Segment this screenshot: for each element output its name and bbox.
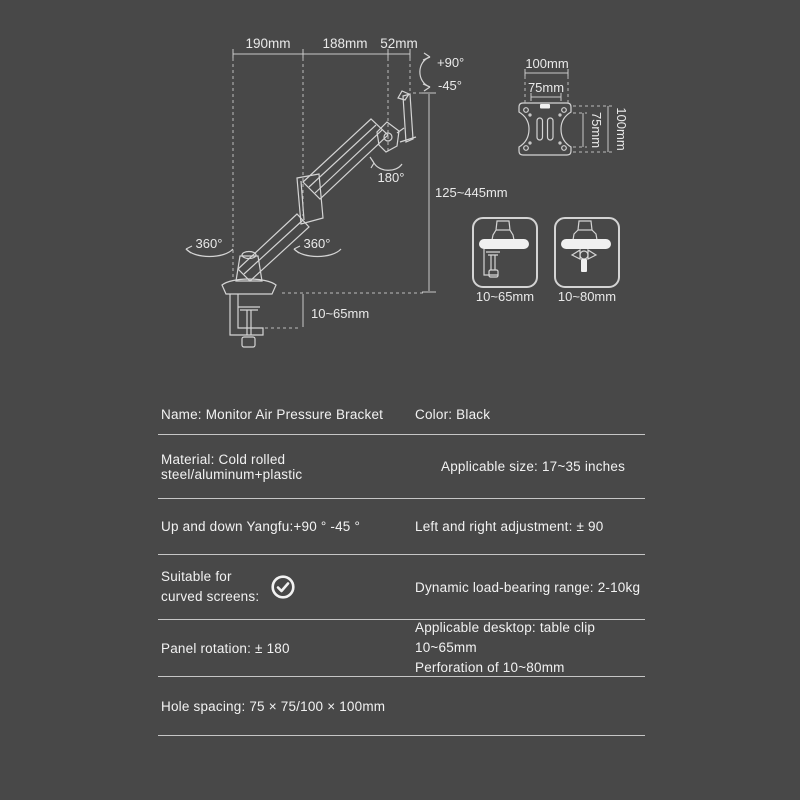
spec-material: Material: Cold rolled steel/aluminum+pla… bbox=[158, 452, 415, 482]
height-range-dimension: 125~445mm bbox=[413, 93, 508, 292]
spec-applicable-size: Applicable size: 17~35 inches bbox=[415, 459, 645, 474]
dim-label-190mm: 190mm bbox=[245, 36, 290, 51]
spec-hole-spacing: Hole spacing: 75 × 75/100 × 100mm bbox=[158, 699, 645, 714]
panel-rotation-annotation: 180° bbox=[370, 157, 404, 185]
product-spec-page: 190mm 188mm 52mm +90° -45° bbox=[0, 0, 800, 800]
clamp-thickness-dimension: 10~65mm bbox=[265, 293, 426, 328]
mount-option-clamp: 10~65mm bbox=[473, 218, 537, 304]
dim-label-188mm: 188mm bbox=[322, 36, 367, 51]
mount-option-grommet: 10~80mm bbox=[555, 218, 619, 304]
spec-row-rotation-desktop: Panel rotation: ± 180 Applicable desktop… bbox=[158, 620, 645, 677]
vesa-height-inner-label: 75mm bbox=[589, 112, 604, 148]
spec-left-right: Left and right adjustment: ± 90 bbox=[415, 519, 645, 534]
spec-up-down: Up and down Yangfu:+90 ° -45 ° bbox=[158, 519, 415, 534]
spec-row-name-color: Name: Monitor Air Pressure Bracket Color… bbox=[158, 395, 645, 435]
panel-rotation-label: 180° bbox=[378, 170, 405, 185]
mount-option-grommet-label: 10~80mm bbox=[558, 289, 616, 304]
spec-applicable-desktop: Applicable desktop: table clip 10~65mm P… bbox=[415, 618, 645, 679]
spec-row-tilt-swivel: Up and down Yangfu:+90 ° -45 ° Left and … bbox=[158, 499, 645, 555]
vesa-width-inner-label: 75mm bbox=[528, 80, 564, 95]
swivel-right-label: 360° bbox=[304, 236, 331, 251]
swivel-left-annotation: 360° bbox=[186, 236, 233, 257]
product-diagram: 190mm 188mm 52mm +90° -45° bbox=[0, 0, 800, 392]
spec-table: Name: Monitor Air Pressure Bracket Color… bbox=[158, 395, 645, 736]
swivel-left-label: 360° bbox=[196, 236, 223, 251]
vesa-dimensions: 100mm 75mm 75mm 100mm bbox=[525, 56, 629, 152]
height-range-label: 125~445mm bbox=[435, 185, 508, 200]
spec-curved-screens: Suitable for curved screens: bbox=[161, 567, 259, 608]
tilt-up-label: +90° bbox=[437, 55, 464, 70]
check-circle-icon bbox=[270, 574, 296, 600]
swivel-right-annotation: 360° bbox=[294, 236, 341, 257]
clamp-range-label: 10~65mm bbox=[311, 306, 369, 321]
vesa-plate-drawing bbox=[519, 103, 571, 155]
spec-load-range: Dynamic load-bearing range: 2-10kg bbox=[415, 580, 645, 595]
mount-option-clamp-label: 10~65mm bbox=[476, 289, 534, 304]
tilt-down-label: -45° bbox=[438, 78, 462, 93]
spec-color: Color: Black bbox=[415, 407, 645, 422]
spec-name: Name: Monitor Air Pressure Bracket bbox=[158, 407, 415, 422]
vesa-height-outer-label: 100mm bbox=[614, 107, 629, 150]
spec-row-hole-spacing: Hole spacing: 75 × 75/100 × 100mm bbox=[158, 677, 645, 736]
tilt-rotation-annotation: +90° -45° bbox=[420, 53, 464, 93]
dim-label-52mm: 52mm bbox=[380, 36, 418, 51]
spec-panel-rotation: Panel rotation: ± 180 bbox=[158, 641, 415, 656]
spec-row-curved-load: Suitable for curved screens: Dynamic loa… bbox=[158, 555, 645, 620]
vesa-width-outer-label: 100mm bbox=[525, 56, 568, 71]
spec-row-material-size: Material: Cold rolled steel/aluminum+pla… bbox=[158, 435, 645, 499]
